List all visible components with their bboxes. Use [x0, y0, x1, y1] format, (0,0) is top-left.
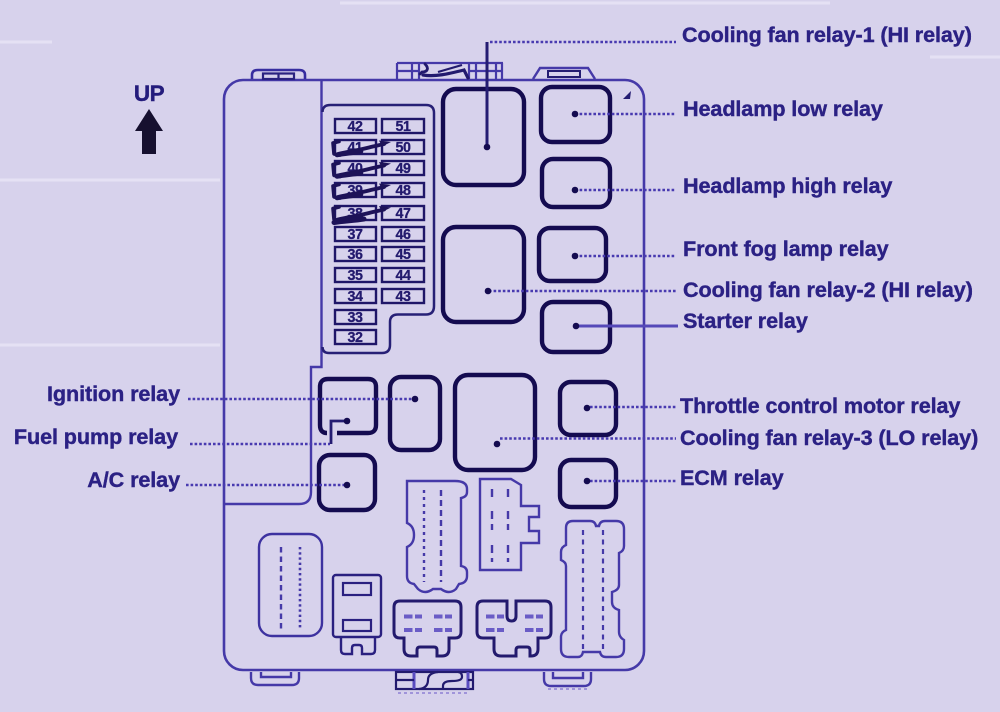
svg-text:48: 48 [395, 183, 411, 199]
svg-text:Cooling fan relay-1 (HI relay): Cooling fan relay-1 (HI relay) [682, 22, 972, 47]
svg-text:Headlamp high relay: Headlamp high relay [683, 173, 892, 198]
svg-text:46: 46 [395, 227, 411, 243]
svg-text:33: 33 [347, 310, 363, 326]
svg-text:49: 49 [395, 161, 411, 177]
svg-text:44: 44 [395, 268, 411, 284]
svg-text:ECM relay: ECM relay [680, 465, 784, 490]
svg-text:Cooling fan relay-2 (HI relay): Cooling fan relay-2 (HI relay) [683, 277, 973, 302]
svg-text:A/C relay: A/C relay [87, 467, 180, 492]
svg-text:Fuel pump relay: Fuel pump relay [14, 424, 178, 449]
svg-text:45: 45 [395, 247, 411, 263]
svg-text:34: 34 [347, 289, 363, 305]
svg-text:Throttle control motor relay: Throttle control motor relay [680, 393, 960, 418]
svg-text:43: 43 [395, 289, 411, 305]
svg-text:Ignition relay: Ignition relay [47, 381, 180, 406]
svg-text:Front fog lamp relay: Front fog lamp relay [683, 236, 889, 261]
svg-text:UP: UP [134, 81, 165, 106]
svg-text:36: 36 [347, 247, 363, 263]
svg-text:37: 37 [347, 227, 363, 243]
svg-text:32: 32 [347, 330, 363, 346]
svg-text:Headlamp low relay: Headlamp low relay [683, 96, 883, 121]
svg-text:Starter relay: Starter relay [683, 308, 808, 333]
svg-text:51: 51 [395, 119, 411, 135]
svg-text:50: 50 [395, 140, 411, 156]
svg-text:42: 42 [347, 119, 363, 135]
svg-text:47: 47 [395, 206, 411, 222]
svg-text:Cooling fan relay-3 (LO relay): Cooling fan relay-3 (LO relay) [680, 425, 978, 450]
svg-text:35: 35 [347, 268, 363, 284]
